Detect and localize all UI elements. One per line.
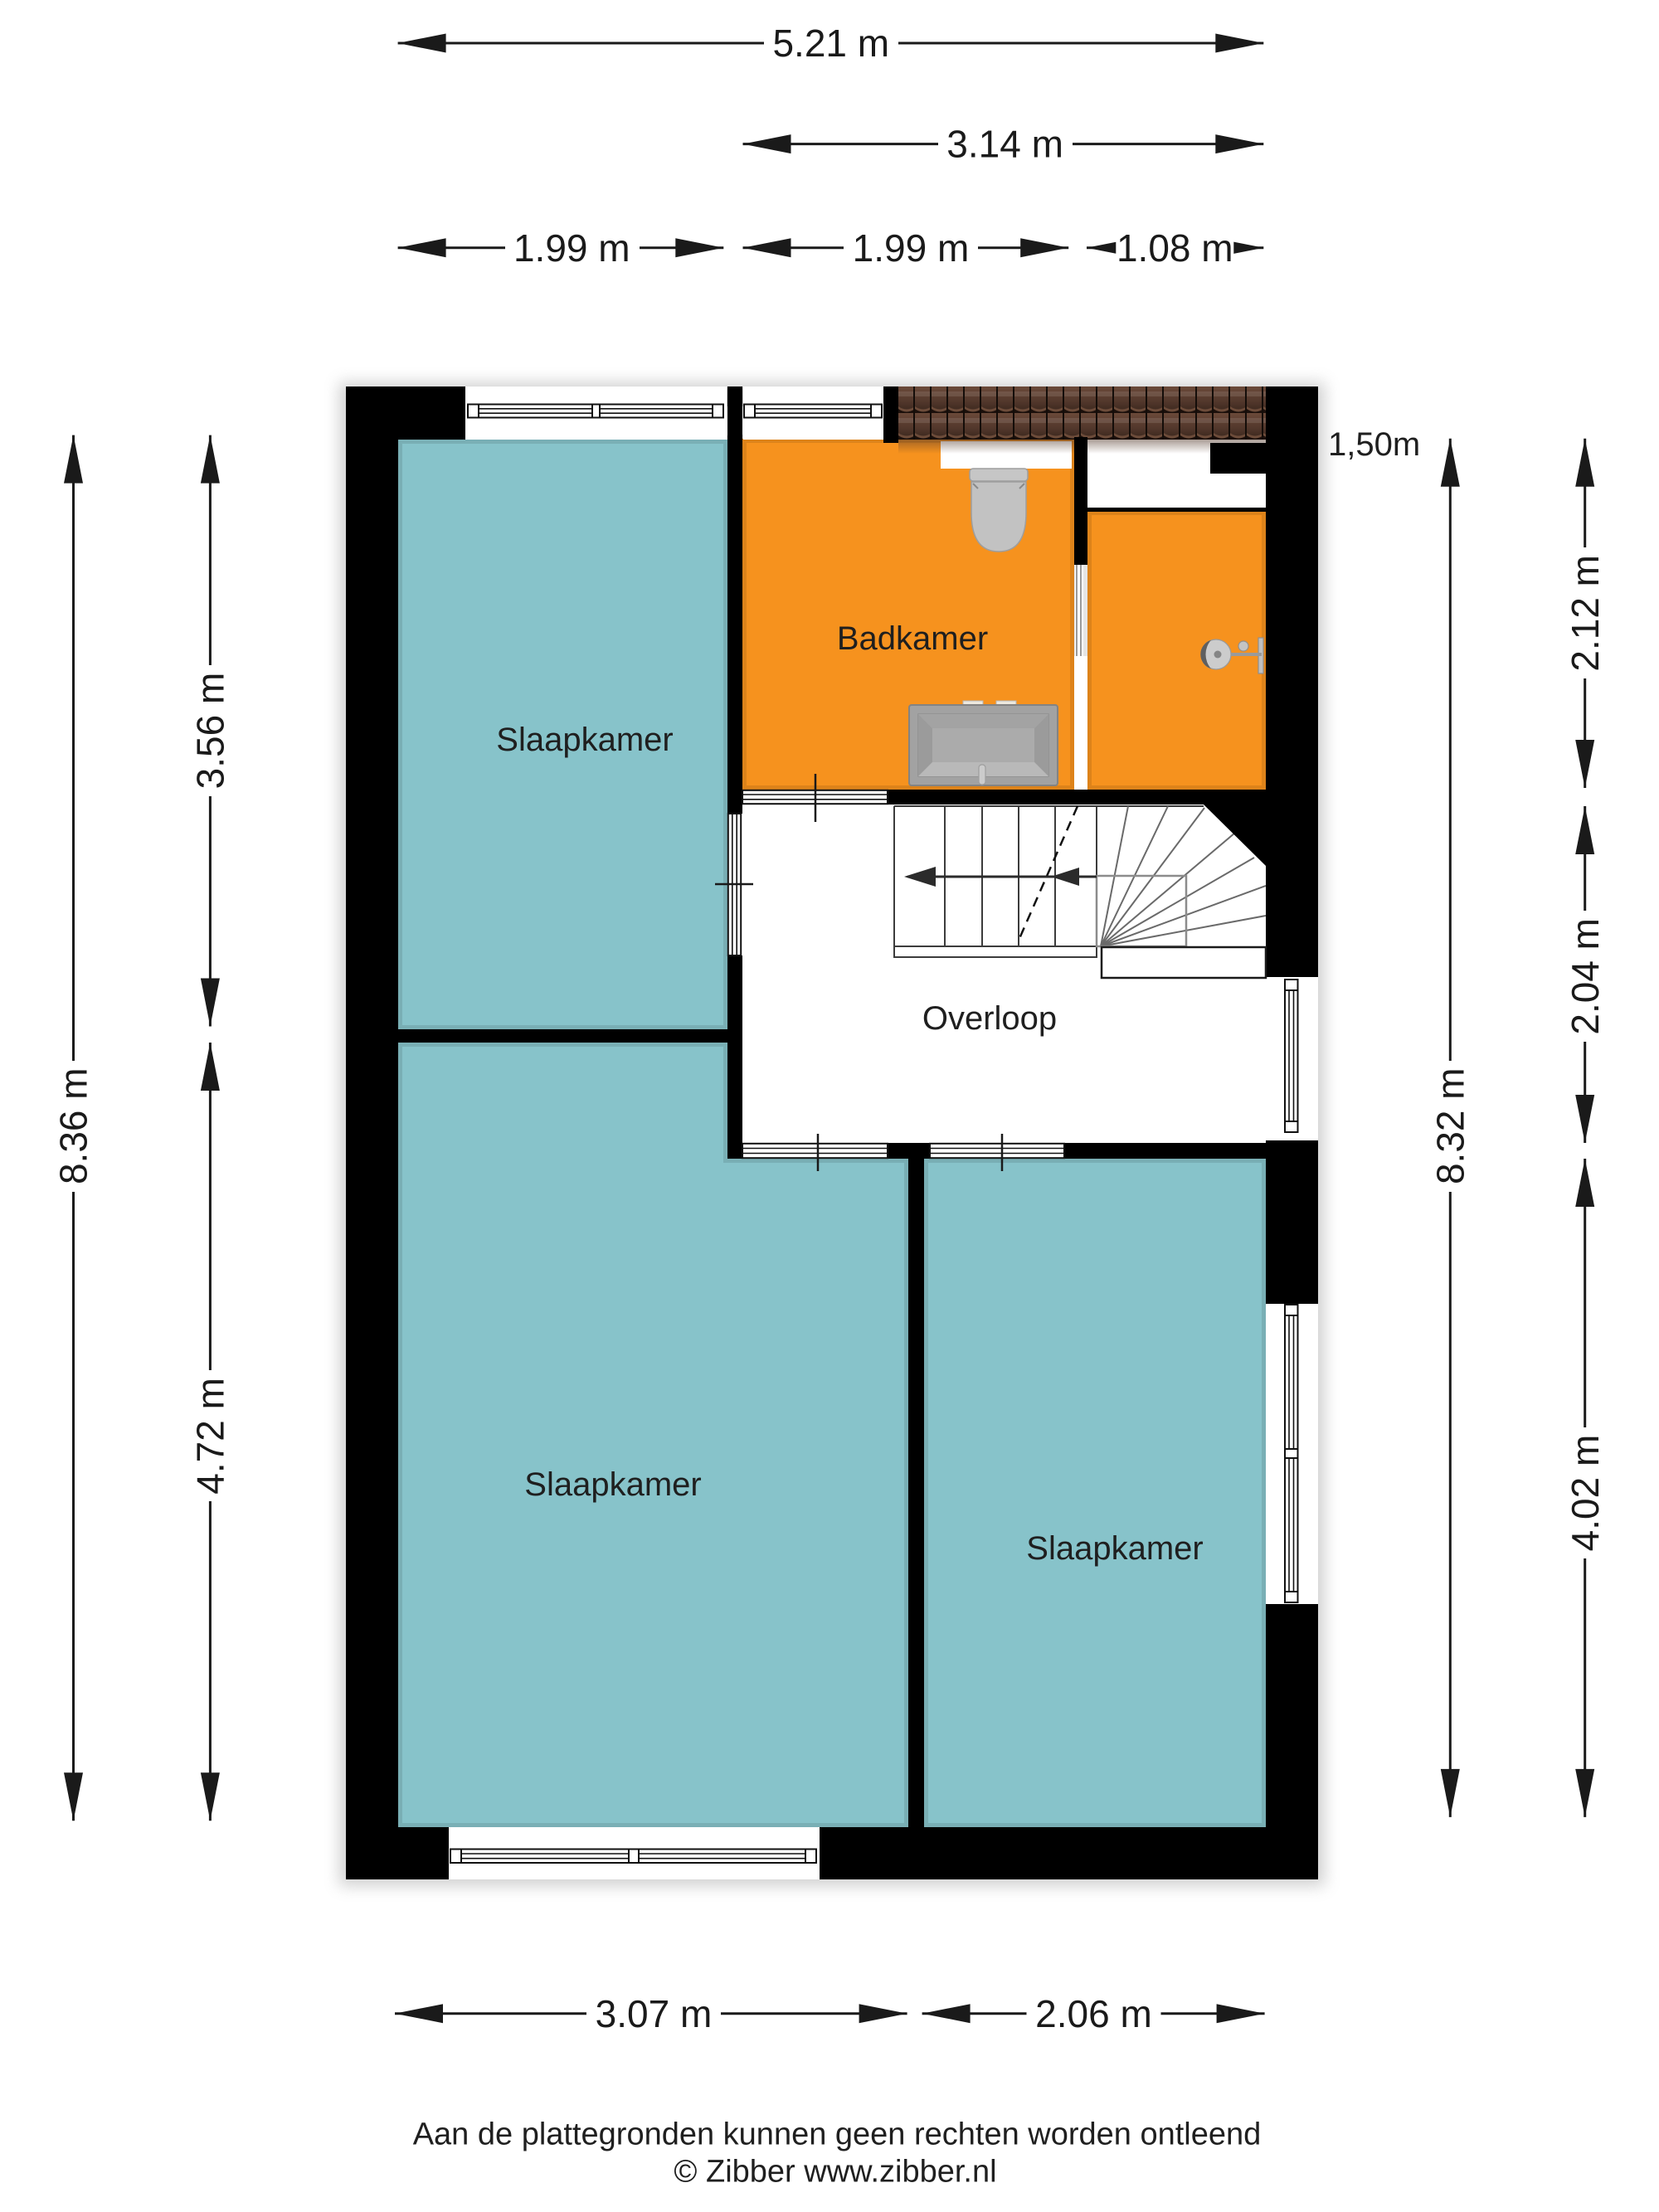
svg-text:3.14 m: 3.14 m	[946, 123, 1063, 166]
svg-text:3.56 m: 3.56 m	[188, 673, 231, 790]
svg-text:1.08 m: 1.08 m	[1117, 226, 1233, 270]
svg-text:2.04 m: 2.04 m	[1564, 918, 1607, 1035]
svg-text:Badkamer: Badkamer	[837, 620, 988, 657]
svg-text:2.12 m: 2.12 m	[1564, 555, 1607, 672]
svg-text:Slaapkamer: Slaapkamer	[1026, 1530, 1203, 1567]
svg-text:3.07 m: 3.07 m	[596, 1992, 713, 2035]
svg-text:4.72 m: 4.72 m	[188, 1378, 231, 1495]
svg-text:1.99 m: 1.99 m	[513, 226, 630, 270]
svg-text:Slaapkamer: Slaapkamer	[496, 722, 673, 758]
svg-text:Aan de plattegronden kunnen ge: Aan de plattegronden kunnen geen rechten…	[413, 2117, 1262, 2151]
svg-text:1.99 m: 1.99 m	[853, 226, 970, 270]
svg-text:Slaapkamer: Slaapkamer	[524, 1466, 701, 1503]
svg-text:© Zibber www.zibber.nl: © Zibber www.zibber.nl	[674, 2154, 996, 2189]
svg-text:Overloop: Overloop	[922, 1000, 1057, 1037]
svg-text:8.32 m: 8.32 m	[1428, 1067, 1472, 1184]
svg-text:1,50m: 1,50m	[1328, 426, 1420, 463]
svg-text:2.06 m: 2.06 m	[1035, 1992, 1152, 2035]
svg-text:4.02 m: 4.02 m	[1564, 1435, 1607, 1552]
svg-text:5.21 m: 5.21 m	[772, 22, 889, 65]
svg-text:8.36 m: 8.36 m	[52, 1067, 95, 1184]
